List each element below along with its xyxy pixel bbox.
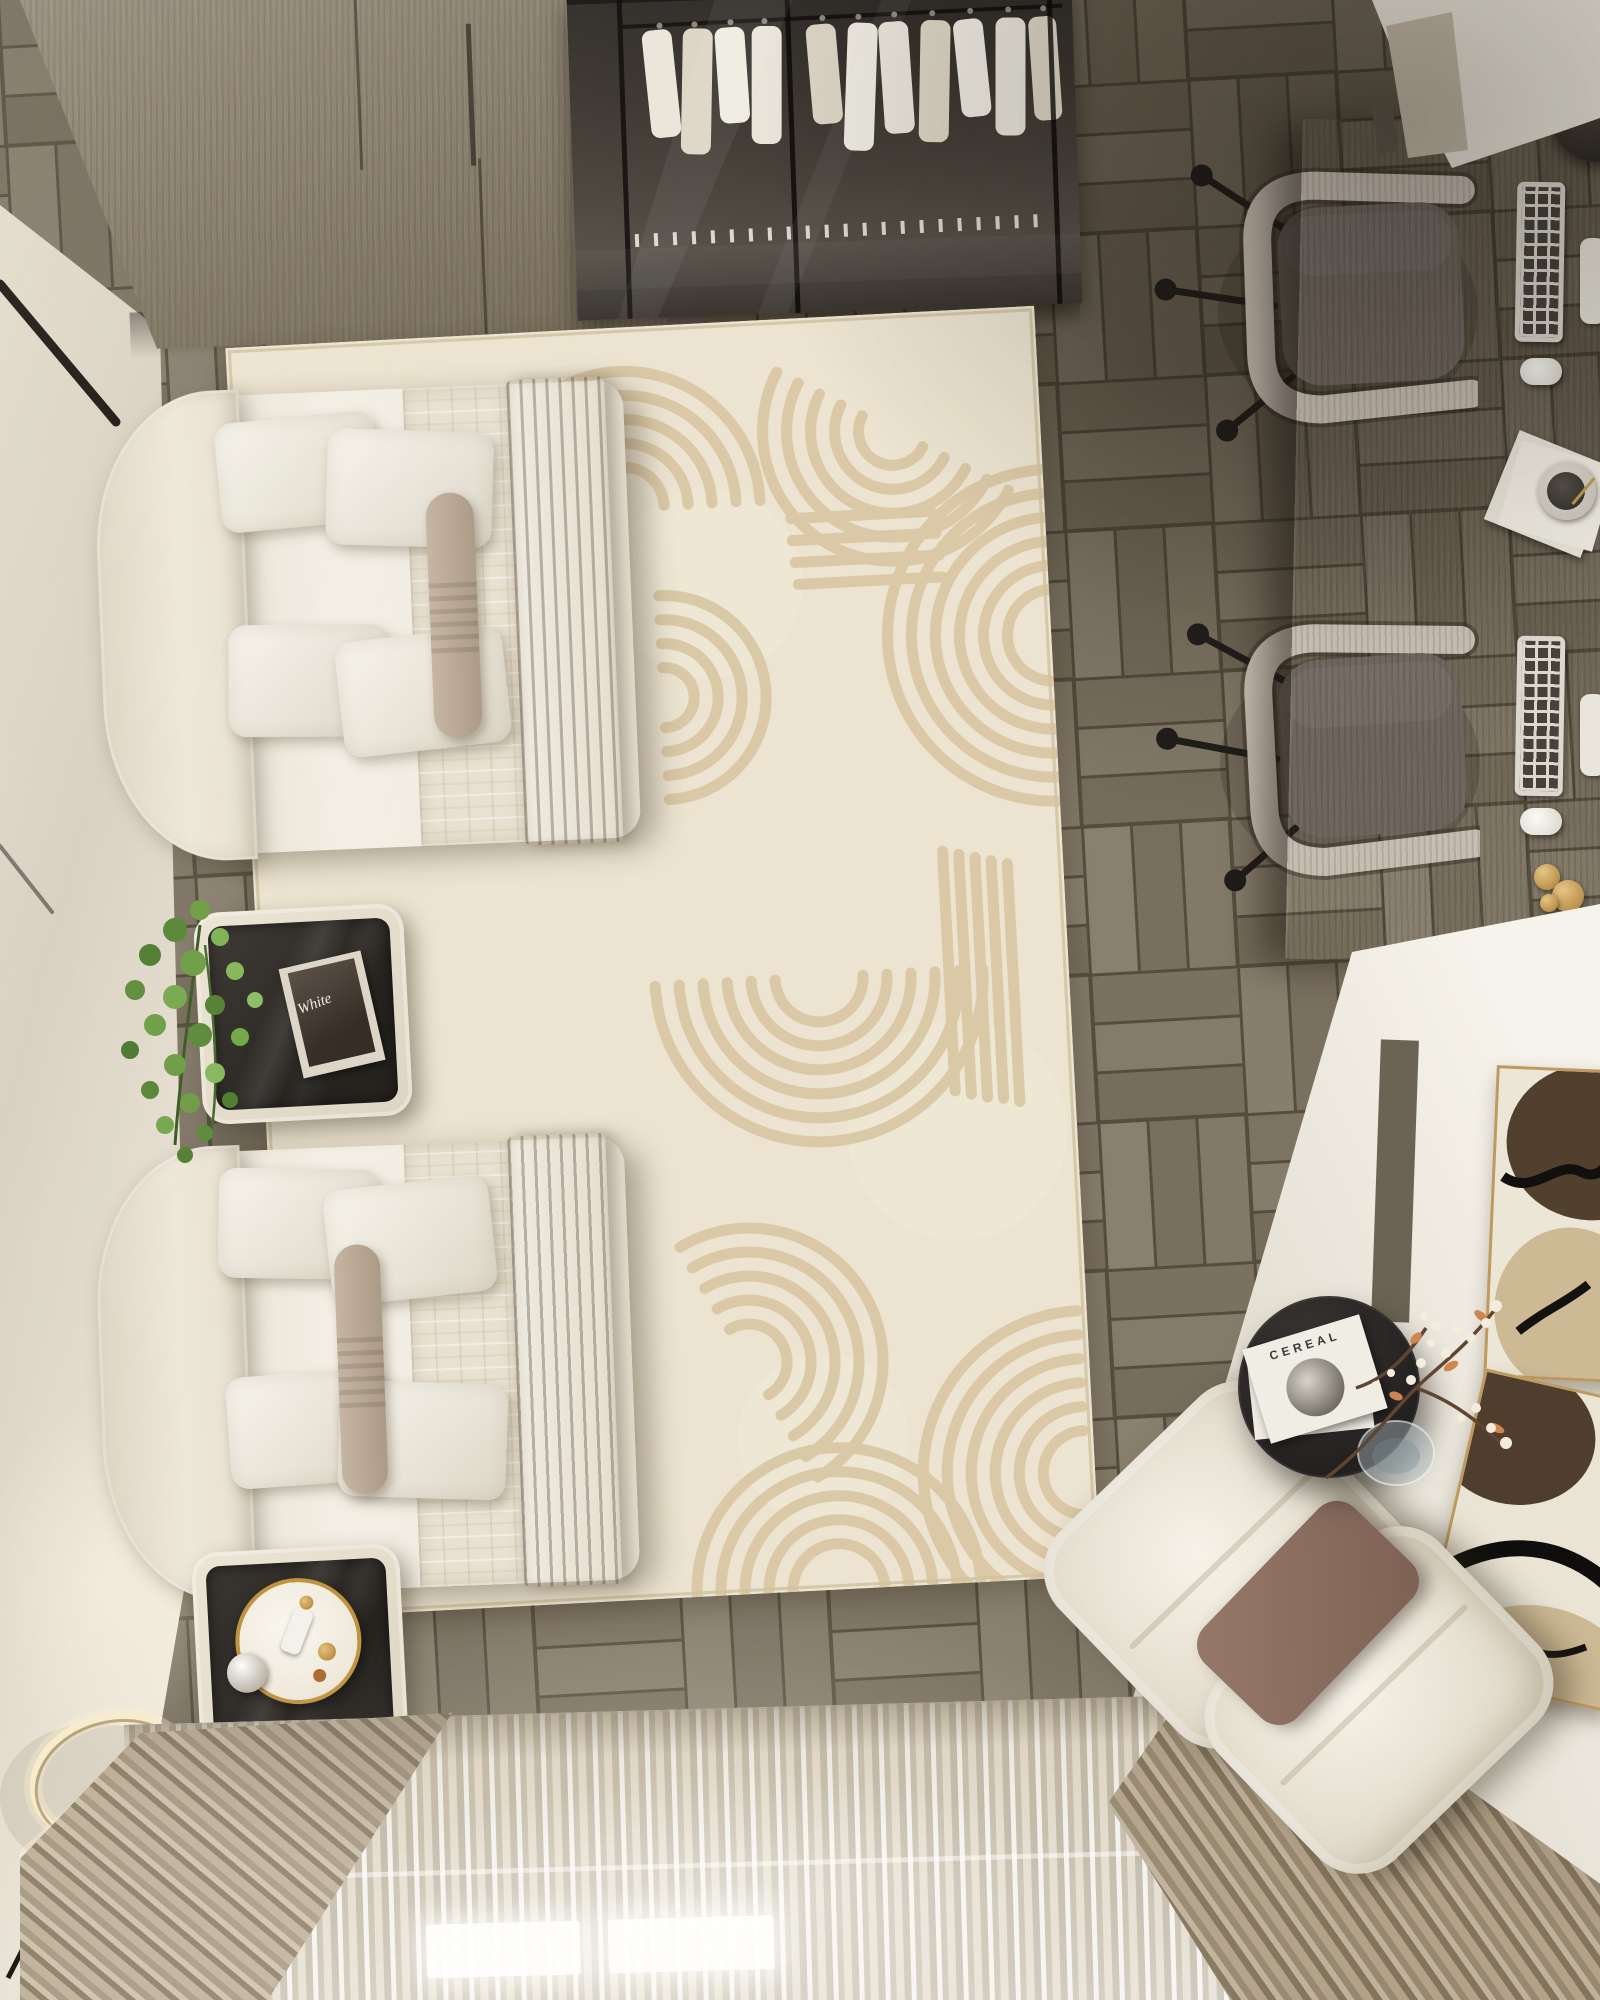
window-light-bar-1 xyxy=(426,1920,581,1978)
art-brown-blob xyxy=(1503,1068,1600,1224)
keyboard-1 xyxy=(1515,182,1566,343)
cereal-cover-photo xyxy=(1279,1351,1351,1423)
perfume-bottle xyxy=(279,1606,314,1656)
wardrobe-interior xyxy=(567,0,1083,321)
bed-2-throw-blanket xyxy=(507,1133,622,1587)
bed-1-bolster xyxy=(425,492,483,740)
keyboard-2 xyxy=(1515,636,1566,797)
brass-decor xyxy=(1540,894,1558,912)
bed-1-throw-blanket xyxy=(506,376,623,846)
window-light-bar-2 xyxy=(608,1915,775,1974)
art-beige-blob xyxy=(1491,1224,1600,1379)
nightstand-1: White xyxy=(193,903,414,1126)
bottle-cap xyxy=(299,1595,314,1610)
coffee-plate xyxy=(1538,462,1596,520)
art-canvas-1 xyxy=(1483,1065,1600,1383)
bed-1-pillow xyxy=(333,625,513,759)
desk-pad-2 xyxy=(1580,694,1600,776)
gold-jar xyxy=(318,1642,337,1661)
bed-2-bolster xyxy=(333,1244,389,1496)
desk-pad-1 xyxy=(1580,238,1600,324)
amber-vial xyxy=(313,1669,327,1683)
mouse-1 xyxy=(1520,358,1562,385)
mouse-2 xyxy=(1520,808,1562,835)
wardrobe-glass-section xyxy=(567,0,1083,321)
bed-2 xyxy=(91,1130,653,1606)
bedroom-render: White xyxy=(0,0,1600,2000)
bed-1 xyxy=(90,373,654,865)
coffee-cup xyxy=(1547,472,1585,510)
